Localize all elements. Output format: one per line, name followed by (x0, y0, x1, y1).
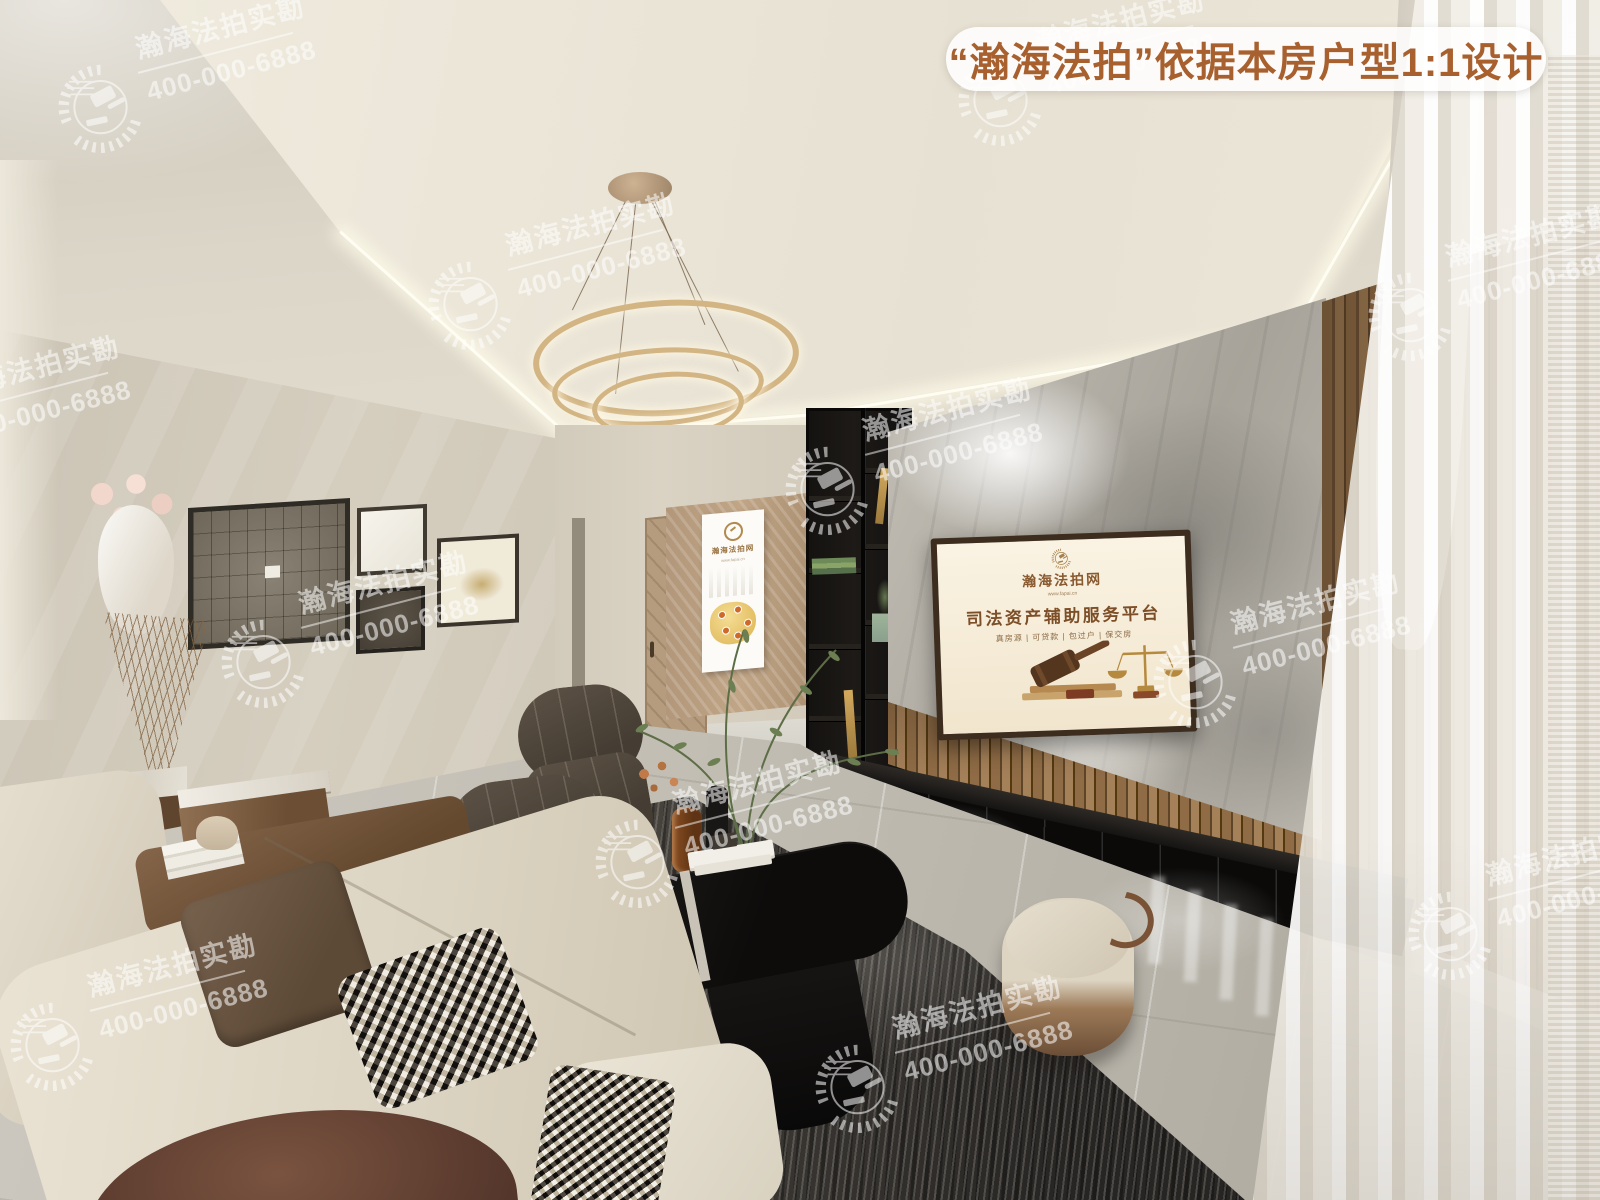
tv-brand-url: www.fapai.cn (1048, 591, 1078, 598)
ottoman-pouf-top (1006, 900, 1130, 978)
tv-gavel-scales-graphic (946, 638, 1184, 712)
pendant-canopy (608, 172, 672, 204)
console-round-box (196, 816, 238, 850)
wall-art-1 (188, 498, 350, 650)
promo-banner-text: “瀚海法拍”依据本房户型1:1设计 (949, 30, 1544, 88)
poster-skyline (709, 564, 757, 598)
living-room-photo: 瀚海法拍网 www.fapai.cn (0, 0, 1600, 1200)
poster-logo-icon (724, 521, 743, 542)
shelf-books (812, 557, 857, 575)
wall-art-3 (356, 586, 425, 654)
houndstooth-throw (529, 1063, 677, 1200)
tv-brand-logo-icon (1050, 547, 1073, 570)
tv-title: 司法资产辅助服务平台 (965, 599, 1161, 631)
poster-url: www.fapai.cn (721, 556, 745, 563)
dried-flowers (630, 756, 686, 802)
sheer-curtain-texture (1548, 55, 1600, 1200)
tv-screen: 瀚海法拍网 www.fapai.cn 司法资产辅助服务平台 真房源 | 可贷款 … (931, 530, 1198, 741)
poster-brand: 瀚海法拍网 (712, 542, 755, 557)
tv-brand-name: 瀚海法拍网 (1022, 569, 1103, 592)
wall-art-4 (437, 533, 519, 627)
wall-art-2 (357, 504, 427, 576)
window-reveal (0, 160, 58, 720)
promo-banner: “瀚海法拍”依据本房户型1:1设计 (946, 27, 1546, 91)
